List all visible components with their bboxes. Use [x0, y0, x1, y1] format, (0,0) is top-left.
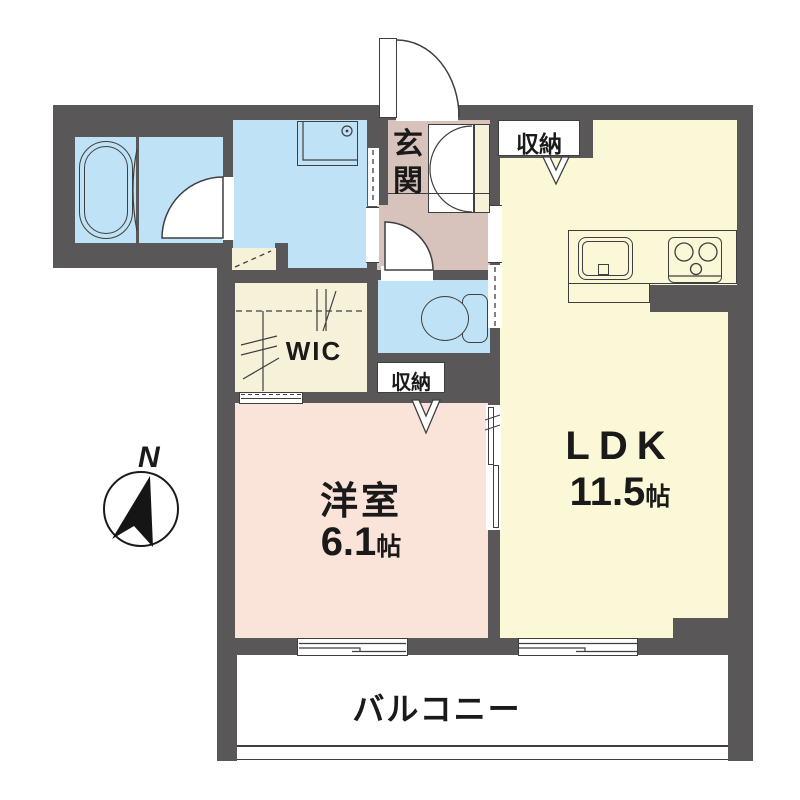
shoe-counter	[474, 124, 490, 213]
washroom-wic-opening	[232, 248, 276, 270]
ldk-label: LDK	[540, 424, 700, 469]
opening-washroom-hall	[366, 207, 379, 263]
washing-machine-pan	[297, 121, 358, 166]
room-ldk-upper-right	[593, 120, 737, 158]
duct-strip-ldk	[488, 265, 502, 328]
room-hall	[377, 205, 490, 270]
duct-strip-entrance	[368, 148, 379, 206]
ldk-area-value: 11.5	[570, 470, 646, 514]
ldk-area-unit: 帖	[645, 483, 670, 511]
bedroom-balcony-window	[297, 638, 408, 656]
washroom-wall-stub	[275, 243, 288, 270]
bedroom-area: 6.1帖	[255, 520, 467, 565]
sliding-door-panel-lower	[493, 465, 499, 528]
compass-north-label: N	[138, 441, 160, 475]
balcony-outer-strip	[237, 749, 728, 760]
ldk-balcony-window	[518, 638, 638, 656]
entrance-label: 玄関	[393, 126, 429, 200]
ldk-area: 11.5帖	[540, 470, 700, 515]
room-ldk-bottom	[500, 618, 673, 638]
bedroom-label: 洋室	[255, 470, 467, 525]
north-arrow-icon	[112, 476, 153, 547]
entry-door-panel	[379, 38, 397, 118]
sink-drain	[598, 264, 609, 275]
floor-plan: 玄関 収納 収納 WIC 洋室 6.1帖 LDK 11.5帖 バルコニー N	[0, 0, 800, 800]
opening-hall-ldk	[488, 205, 502, 263]
balcony-label: バルコニー	[237, 684, 637, 730]
wall-left-lower	[217, 655, 237, 761]
compass-circle	[104, 472, 178, 546]
wall-right-lower	[728, 655, 753, 761]
storage-bedroom-label: 収納	[377, 366, 445, 395]
shoe-cabinet	[428, 124, 474, 213]
bedroom-area-value: 6.1	[321, 520, 377, 564]
wic-sliding-door	[239, 392, 303, 404]
kitchen-counter-front	[568, 284, 650, 303]
storage-ldk-label: 収納	[498, 125, 580, 159]
toilet-bowl	[421, 296, 469, 341]
wic-label: WIC	[278, 336, 350, 367]
stove	[668, 237, 722, 283]
bath-divider-wall	[136, 137, 139, 243]
toilet-door-gap	[381, 266, 433, 281]
bathtub-inner	[84, 146, 128, 234]
sliding-door-panel-upper	[488, 407, 494, 465]
bath-door-gap	[222, 177, 234, 240]
entry-door-gap	[396, 103, 458, 121]
bedroom-area-unit: 帖	[376, 533, 401, 561]
